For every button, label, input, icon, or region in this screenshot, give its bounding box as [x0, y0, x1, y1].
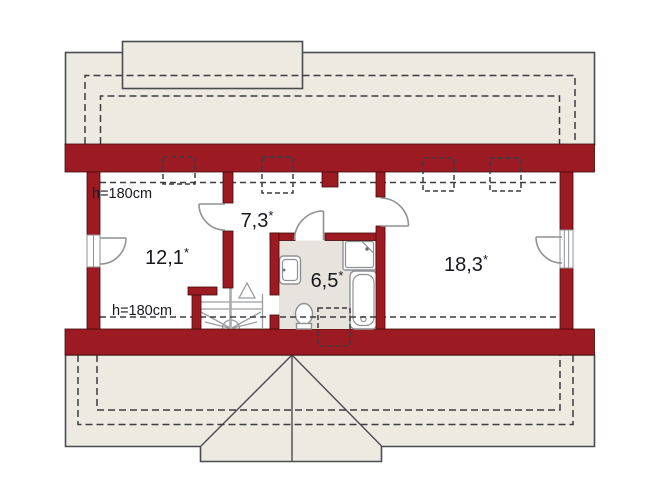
wall-right-upper [560, 172, 573, 230]
door-hall-to-bath [295, 211, 324, 240]
wall-bath-left-stub [270, 315, 279, 329]
height-label-top: h=180cm [92, 186, 152, 202]
room-label-right: 18,3* [444, 252, 488, 276]
door-hall-to-room-left [199, 204, 225, 230]
wall-bath-left [270, 233, 279, 295]
window-right-swing [536, 237, 562, 263]
door-left-opening [87, 235, 100, 267]
roof-dormer [123, 42, 303, 89]
roof-bottom-with-porch [66, 355, 595, 462]
wall-room-right-lower [376, 226, 385, 329]
bathtub-icon [350, 271, 377, 329]
wall-room-right-stub [376, 172, 385, 197]
wall-left-lower [87, 267, 100, 329]
floor-plan-page: h=180cm h=180cm 12,1* 7,3* 6,5* 18,3* [0, 0, 660, 504]
wall-right-lower [560, 268, 573, 329]
sink-icon [280, 256, 301, 284]
wall-partition-lower [223, 231, 233, 288]
shower-icon [343, 239, 376, 270]
room-label-hall: 7,3* [241, 208, 274, 232]
door-hall-to-room-right [381, 198, 409, 226]
wall-stair-left [192, 295, 201, 329]
height-label-bottom: h=180cm [112, 303, 172, 319]
stair-up-arrow-icon [239, 283, 255, 298]
floor-plan: h=180cm h=180cm 12,1* 7,3* 6,5* 18,3* [0, 0, 660, 504]
door-left-swing [100, 238, 126, 264]
chimney [322, 172, 338, 187]
wall-partition-stub [223, 172, 233, 203]
room-label-left: 12,1* [145, 245, 189, 269]
wall-band-south [65, 329, 595, 355]
toilet-icon [296, 304, 313, 330]
wall-left-upper [87, 172, 100, 235]
wall-stair-cap [188, 287, 217, 295]
